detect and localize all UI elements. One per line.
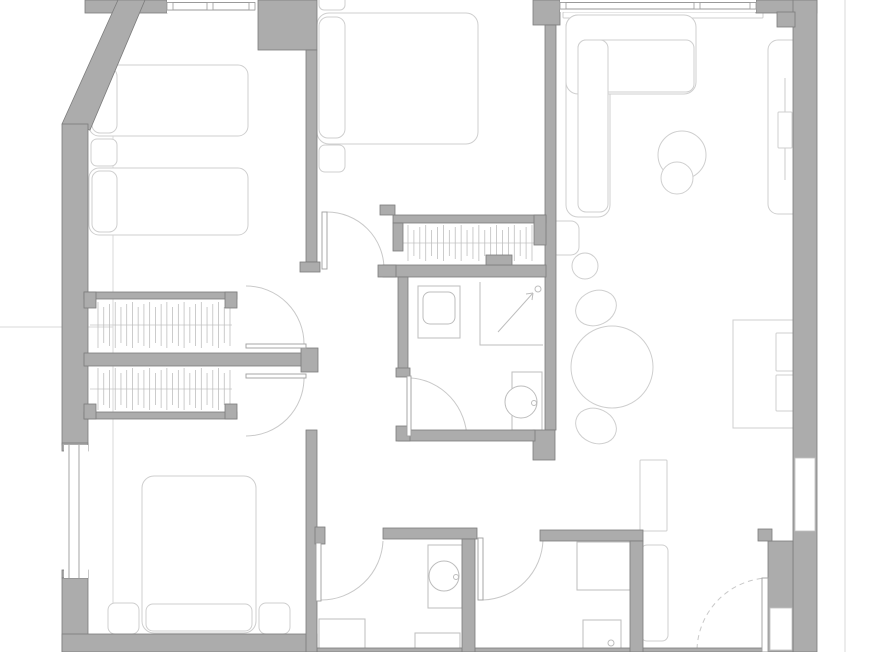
wall-living-corner — [533, 430, 555, 460]
door-arc-bedroom2 — [327, 212, 384, 269]
window-bedroom1-mullion — [207, 3, 213, 11]
bed-2-pillow — [319, 17, 345, 138]
wall-bath2-right — [630, 541, 643, 652]
floor-lamp — [572, 253, 598, 279]
wall-bottom-bed3 — [62, 634, 317, 652]
wall-closet-notch — [486, 255, 512, 265]
wall-right — [793, 0, 817, 652]
wall-top-block-mid — [533, 0, 560, 25]
wall-bottom-sliver — [317, 648, 793, 652]
wall-bath1-left — [398, 277, 408, 370]
wall-wardrobe-top-cap-left — [84, 292, 96, 308]
window-bedroom1-mullion — [249, 3, 255, 11]
wall-right-step — [777, 12, 795, 27]
bath1-toilet-button — [532, 401, 537, 406]
wall-corridor-right — [540, 530, 643, 541]
wall-closet-right-cap — [534, 215, 546, 245]
wc-toilet-button — [454, 575, 459, 580]
wall-wc-jamb — [315, 527, 325, 544]
bed-1b-pillow — [92, 171, 117, 232]
bath1-shower-edge — [480, 282, 543, 345]
wall-wardrobe-top — [84, 292, 237, 299]
wall-niche-lower — [770, 608, 792, 650]
door-leaf-bedroom2 — [322, 212, 327, 269]
door-arc-bath2 — [483, 540, 543, 600]
window-living-mullion — [560, 3, 566, 10]
wall-closet-bottom — [383, 265, 546, 277]
bed-3-pillow — [146, 604, 252, 631]
nightstand-bed3-right — [259, 603, 290, 634]
door-leaf-entry — [762, 578, 768, 652]
wall-living-divider — [545, 25, 556, 430]
wall-wardrobe-bottom — [84, 412, 237, 419]
window-living — [560, 0, 756, 12]
door-arc-entry — [697, 578, 766, 649]
bed-2-pillow-top — [319, 0, 345, 10]
door-leaf-bedroom1 — [246, 344, 306, 348]
bath2-basin-drain — [608, 640, 614, 646]
wall-corner-block-bed12 — [258, 0, 317, 50]
wall-bath1-bottom — [398, 430, 535, 441]
wall-closet-left-cap — [393, 223, 403, 251]
wall-left — [62, 124, 88, 445]
dining-table — [571, 326, 653, 408]
nightstand-bed1 — [91, 139, 117, 166]
dining-chair-bottom — [570, 402, 622, 451]
door-arc-wc — [321, 541, 383, 600]
wall-closet-foot — [378, 265, 396, 277]
bath2-basin — [583, 620, 621, 652]
side-table-small — [661, 162, 693, 194]
wall-passage-stub — [380, 205, 395, 215]
wall-wardrobe-top-cap-right — [225, 292, 237, 308]
entry-cabinet — [640, 460, 667, 531]
wall-closet-top — [393, 215, 546, 223]
wall-niche-upper — [795, 458, 815, 531]
wall-wardrobe-bottom-cap-left — [84, 404, 96, 419]
entry-closet — [641, 545, 668, 641]
window-living-mullion — [694, 3, 700, 10]
floor-plan-canvas — [0, 0, 870, 652]
bed-2-cushion — [319, 145, 345, 172]
bath1-shower-head — [535, 286, 541, 292]
floor-plan — [0, 0, 870, 652]
wc-tray — [319, 619, 365, 652]
wall-entry-jamb — [758, 529, 772, 541]
tall-unit-box — [778, 112, 792, 148]
nightstand-bed3-left — [108, 603, 139, 634]
window-bedroom1-mullion — [167, 3, 173, 11]
wall-wardrobe-mid — [84, 353, 303, 366]
window-bedroom3 — [64, 445, 88, 578]
wall-divider-bed12 — [306, 50, 317, 262]
sofa-chaise-seat — [578, 40, 608, 212]
wall-wardrobe-mid-cap — [301, 348, 318, 372]
wall-wardrobe-bottom-cap-right — [225, 404, 237, 419]
window-living-mullion — [750, 3, 756, 10]
door-leaf-bath1 — [407, 376, 411, 436]
wall-wc-right — [462, 539, 475, 652]
bath2-shower — [577, 542, 630, 590]
dining-chair-top — [570, 284, 622, 333]
door-arc-bedroom1 — [246, 286, 304, 344]
door-leaf-bedroom3 — [246, 374, 306, 378]
door-arc-bedroom3 — [246, 378, 304, 436]
door-leaf-bath2 — [478, 538, 483, 600]
wall-divider-bed12-cap — [300, 262, 320, 272]
bath1-basin — [423, 292, 455, 324]
door-leaf-wc — [316, 543, 321, 601]
wall-corridor-left — [383, 528, 477, 539]
